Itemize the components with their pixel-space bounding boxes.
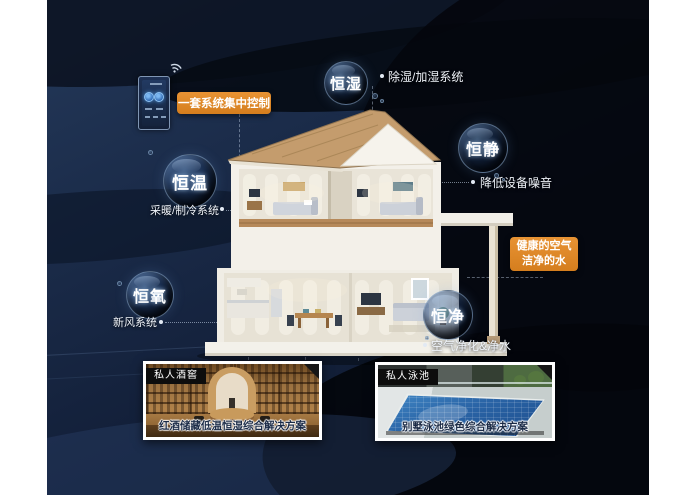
callout-central-control: 一套系统集中控制 <box>177 92 271 114</box>
connector-dot <box>380 74 384 78</box>
mini-bubble <box>380 99 384 103</box>
label-dehumidify-system: 除湿/加湿系统 <box>388 70 463 84</box>
callout-healthy-air-water: 健康的空气 洁净的水 <box>510 237 578 271</box>
callout-water-line: 洁净的水 <box>522 254 566 269</box>
bubble-constant-humidity: 恒湿 <box>324 61 368 105</box>
mini-bubble <box>372 93 378 99</box>
label-noise-reduction: 降低设备噪音 <box>480 176 552 190</box>
humidity-knob <box>154 92 164 102</box>
panel-readout <box>145 108 152 110</box>
scene-canvas: 一套系统集中控制 健康的空气 洁净的水 恒湿 除湿/加湿系统 恒静 降低设备噪音… <box>47 0 649 495</box>
callout-central-control-text: 一套系统集中控制 <box>178 95 270 111</box>
temperature-knob <box>144 92 154 102</box>
label-air-water-purification: 空气净化&净水 <box>431 339 511 353</box>
wine-cellar-caption: 红酒储藏低温恒湿综合解决方案 <box>146 418 319 433</box>
bubble-constant-oxygen: 恒氧 <box>126 271 174 319</box>
mini-bubble <box>502 178 505 181</box>
smart-control-panel <box>138 76 170 130</box>
panel-button <box>161 116 166 118</box>
pool-caption: 别墅泳池绿色综合解决方案 <box>378 419 552 434</box>
wine-cellar-photo: 私人酒窖 红酒储藏低温恒湿综合解决方案 <box>143 361 322 440</box>
photo-corner-fold <box>537 365 552 380</box>
infographic-page: 一套系统集中控制 健康的空气 洁净的水 恒湿 除湿/加湿系统 恒静 降低设备噪音… <box>0 0 700 497</box>
bubble-constant-humidity-text: 恒湿 <box>330 73 362 94</box>
pool-photo: 私人泳池 别墅泳池绿色综合解决方案 <box>375 362 555 441</box>
bubble-constant-temperature: 恒温 <box>163 154 217 208</box>
bubble-constant-purity-text: 恒净 <box>431 303 465 327</box>
mini-bubble <box>117 281 122 286</box>
connector-dot <box>159 320 163 324</box>
panel-readout <box>156 108 163 110</box>
wine-cellar-photo-image: 私人酒窖 红酒储藏低温恒湿综合解决方案 <box>146 364 319 437</box>
callout-air-line: 健康的空气 <box>517 239 572 254</box>
wine-cellar-tag: 私人酒窖 <box>146 368 206 384</box>
label-fresh-air-system: 新风系统 <box>113 316 157 330</box>
mini-bubble <box>494 173 499 178</box>
pool-tag: 私人泳池 <box>378 369 438 385</box>
connector-dot <box>220 207 224 211</box>
bubble-constant-temperature-text: 恒温 <box>172 169 208 194</box>
bubble-constant-oxygen-text: 恒氧 <box>133 283 167 307</box>
pool-photo-image: 私人泳池 别墅泳池绿色综合解决方案 <box>378 365 552 438</box>
bubble-constant-quiet: 恒静 <box>458 123 508 173</box>
mini-bubble <box>425 336 429 340</box>
bubble-constant-quiet-text: 恒静 <box>466 136 500 160</box>
connector-dot <box>423 343 427 347</box>
photo-corner-fold <box>304 364 319 379</box>
panel-button <box>145 116 150 118</box>
control-panel-screen <box>142 80 166 126</box>
connector-dot <box>471 180 475 184</box>
panel-button <box>153 116 158 118</box>
bubble-constant-purity: 恒净 <box>423 290 473 340</box>
mini-bubble <box>148 150 153 155</box>
label-heating-cooling-system: 采暖/制冷系统 <box>150 204 219 218</box>
panel-title-bar <box>150 83 162 85</box>
